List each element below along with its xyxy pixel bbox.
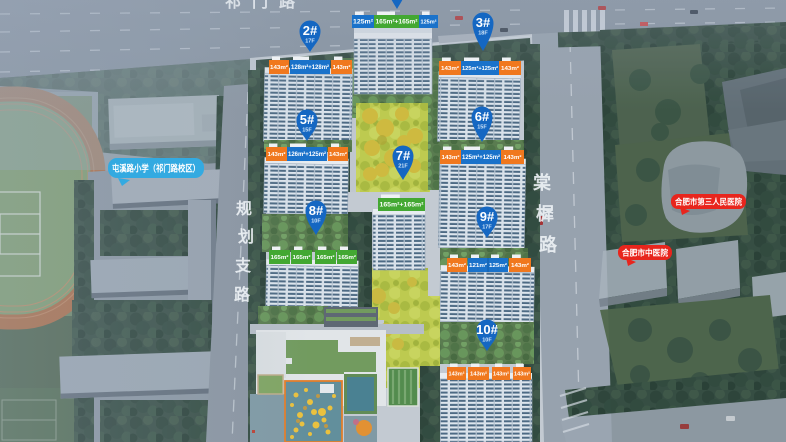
svg-text:165m²: 165m² — [271, 254, 289, 261]
svg-text:143m²: 143m² — [448, 262, 466, 269]
svg-text:165m²+165m²: 165m²+165m² — [380, 202, 425, 209]
svg-text:8#: 8# — [309, 203, 324, 218]
svg-text:10F: 10F — [482, 338, 492, 344]
svg-text:125m²: 125m² — [489, 262, 507, 269]
svg-text:143m²: 143m² — [449, 371, 465, 378]
svg-text:165m²+165m²: 165m²+165m² — [376, 19, 419, 26]
svg-text:15F: 15F — [302, 128, 312, 134]
svg-text:143m²: 143m² — [504, 154, 522, 161]
svg-text:18F: 18F — [478, 31, 488, 37]
svg-text:合肥市第三人民医院: 合肥市第三人民医院 — [674, 197, 742, 207]
svg-text:2#: 2# — [303, 23, 318, 38]
svg-text:143m²: 143m² — [493, 371, 509, 378]
svg-text:7#: 7# — [396, 148, 411, 163]
svg-text:10#: 10# — [476, 322, 498, 337]
svg-text:143m²: 143m² — [501, 65, 519, 72]
svg-text:121m²: 121m² — [469, 262, 487, 269]
svg-text:143m²: 143m² — [442, 154, 460, 161]
svg-text:143m²: 143m² — [270, 64, 288, 71]
svg-text:125m²: 125m² — [353, 19, 374, 26]
svg-text:143m²: 143m² — [441, 65, 459, 72]
svg-text:128m²+128m²: 128m²+128m² — [291, 64, 330, 71]
svg-text:6#: 6# — [475, 109, 490, 124]
svg-text:143m²: 143m² — [333, 64, 351, 71]
svg-text:143m²: 143m² — [268, 151, 286, 158]
svg-text:143m²: 143m² — [470, 371, 487, 378]
svg-text:15F: 15F — [477, 125, 487, 131]
svg-text:17F: 17F — [482, 225, 492, 231]
svg-text:10F: 10F — [311, 219, 321, 225]
svg-text:125m²+125m²: 125m²+125m² — [462, 154, 501, 161]
svg-text:9#: 9# — [480, 209, 495, 224]
svg-text:合肥市中医院: 合肥市中医院 — [621, 248, 668, 258]
svg-text:125m²: 125m² — [421, 19, 437, 26]
svg-text:165m²: 165m² — [338, 254, 356, 261]
svg-text:21F: 21F — [398, 164, 408, 170]
svg-text:屯溪路小学（祁门路校区）: 屯溪路小学（祁门路校区） — [112, 163, 200, 174]
svg-text:3#: 3# — [476, 15, 491, 30]
svg-text:143m²: 143m² — [329, 151, 347, 158]
svg-text:祁门路: 祁门路 — [225, 0, 306, 11]
svg-text:143m²: 143m² — [514, 371, 530, 378]
svg-text:5#: 5# — [300, 112, 315, 127]
svg-text:143m²: 143m² — [511, 262, 529, 269]
svg-text:125m²+125m²: 125m²+125m² — [462, 65, 498, 72]
svg-text:17F: 17F — [305, 39, 315, 45]
svg-text:165m²: 165m² — [317, 254, 335, 261]
svg-text:126m²+125m²: 126m²+125m² — [288, 151, 327, 158]
svg-text:165m²: 165m² — [293, 254, 311, 261]
